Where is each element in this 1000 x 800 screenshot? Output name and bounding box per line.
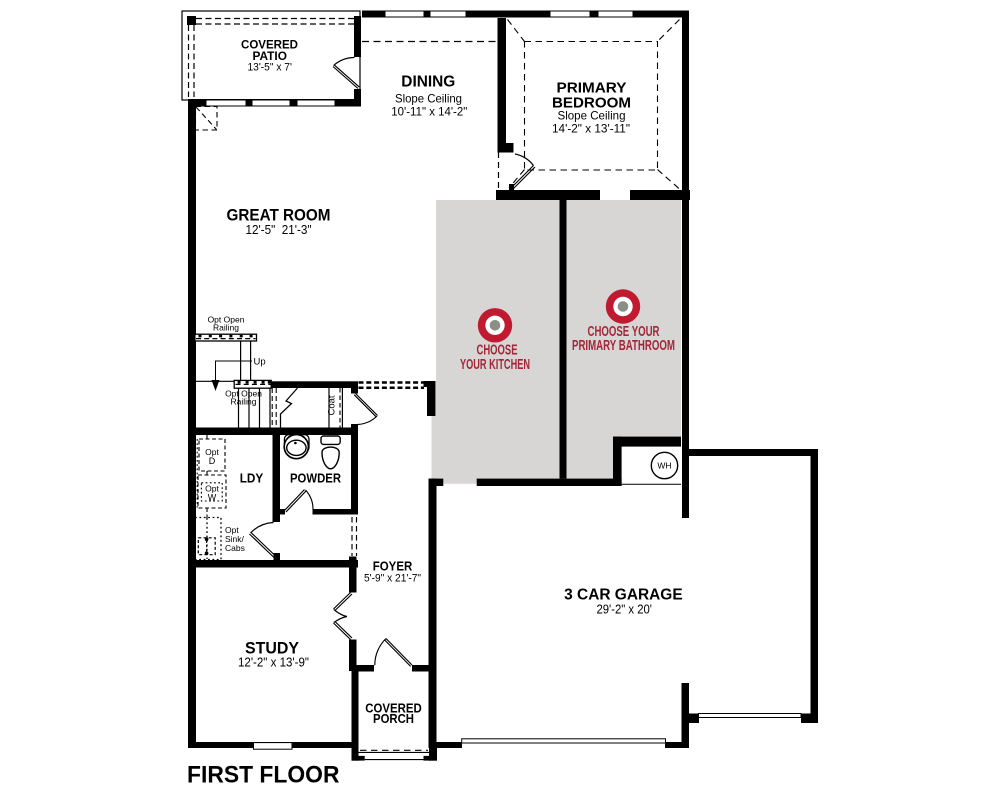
svg-text:Railing: Railing xyxy=(213,323,239,333)
svg-text:5'-9" x 21'-7": 5'-9" x 21'-7" xyxy=(364,573,421,585)
svg-text:12'-5" 21'-3": 12'-5" 21'-3" xyxy=(246,222,312,237)
svg-text:PRIMARY BATHROOM: PRIMARY BATHROOM xyxy=(572,338,675,354)
svg-text:3 CAR GARAGE: 3 CAR GARAGE xyxy=(564,587,683,604)
svg-text:10'-11" x 14'-2": 10'-11" x 14'-2" xyxy=(391,104,467,118)
svg-text:Up: Up xyxy=(254,357,266,368)
svg-text:13'-5" x 7': 13'-5" x 7' xyxy=(247,62,292,74)
svg-text:Slope Ceiling: Slope Ceiling xyxy=(558,109,626,123)
svg-text:Coat: Coat xyxy=(327,395,338,415)
svg-text:POWDER: POWDER xyxy=(290,472,341,486)
svg-text:D: D xyxy=(209,456,216,466)
svg-text:DINING: DINING xyxy=(401,74,455,91)
svg-text:YOUR KITCHEN: YOUR KITCHEN xyxy=(460,357,530,373)
svg-text:Railing: Railing xyxy=(231,397,257,407)
svg-text:Cabs: Cabs xyxy=(225,543,245,553)
svg-text:PATIO: PATIO xyxy=(252,49,287,63)
svg-text:FIRST FLOOR: FIRST FLOOR xyxy=(187,762,340,789)
svg-text:PORCH: PORCH xyxy=(373,712,414,726)
svg-text:LDY: LDY xyxy=(240,471,264,486)
svg-text:14'-2" x 13'-11": 14'-2" x 13'-11" xyxy=(552,122,630,136)
svg-text:29'-2" x 20': 29'-2" x 20' xyxy=(596,603,652,617)
svg-text:WH: WH xyxy=(657,461,671,471)
svg-text:Slope Ceiling: Slope Ceiling xyxy=(395,92,462,106)
svg-text:12'-2" x 13'-9": 12'-2" x 13'-9" xyxy=(238,656,309,670)
svg-text:FOYER: FOYER xyxy=(373,560,413,574)
